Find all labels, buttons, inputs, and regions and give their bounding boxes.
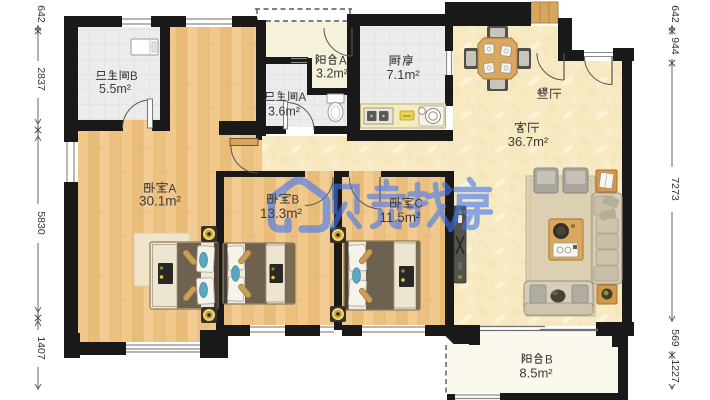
svg-text:1227: 1227 [669, 359, 681, 383]
svg-text:569: 569 [669, 329, 681, 347]
svg-text:30.1m²: 30.1m² [139, 194, 182, 209]
svg-text:7.1m²: 7.1m² [386, 67, 420, 82]
svg-text:642: 642 [669, 5, 681, 23]
svg-text:3.6m²: 3.6m² [268, 105, 300, 119]
svg-text:B: B [545, 354, 553, 366]
svg-text:2837: 2837 [35, 67, 47, 91]
svg-text:944: 944 [669, 37, 681, 55]
svg-text:A: A [299, 92, 307, 104]
svg-text:13.3m²: 13.3m² [260, 206, 303, 221]
svg-text:7273: 7273 [669, 177, 681, 201]
svg-text:C: C [415, 198, 423, 210]
svg-text:5830: 5830 [35, 211, 47, 235]
svg-text:B: B [292, 194, 300, 206]
svg-text:642: 642 [35, 5, 47, 23]
svg-text:3.2m²: 3.2m² [316, 67, 348, 81]
svg-text:8.5m²: 8.5m² [519, 366, 553, 381]
svg-text:B: B [130, 71, 138, 83]
svg-text:1407: 1407 [35, 336, 47, 360]
svg-text:36.7m²: 36.7m² [508, 134, 549, 149]
svg-text:11.5m²: 11.5m² [379, 210, 421, 225]
svg-text:5.5m²: 5.5m² [99, 82, 131, 96]
svg-text:A: A [339, 55, 347, 67]
